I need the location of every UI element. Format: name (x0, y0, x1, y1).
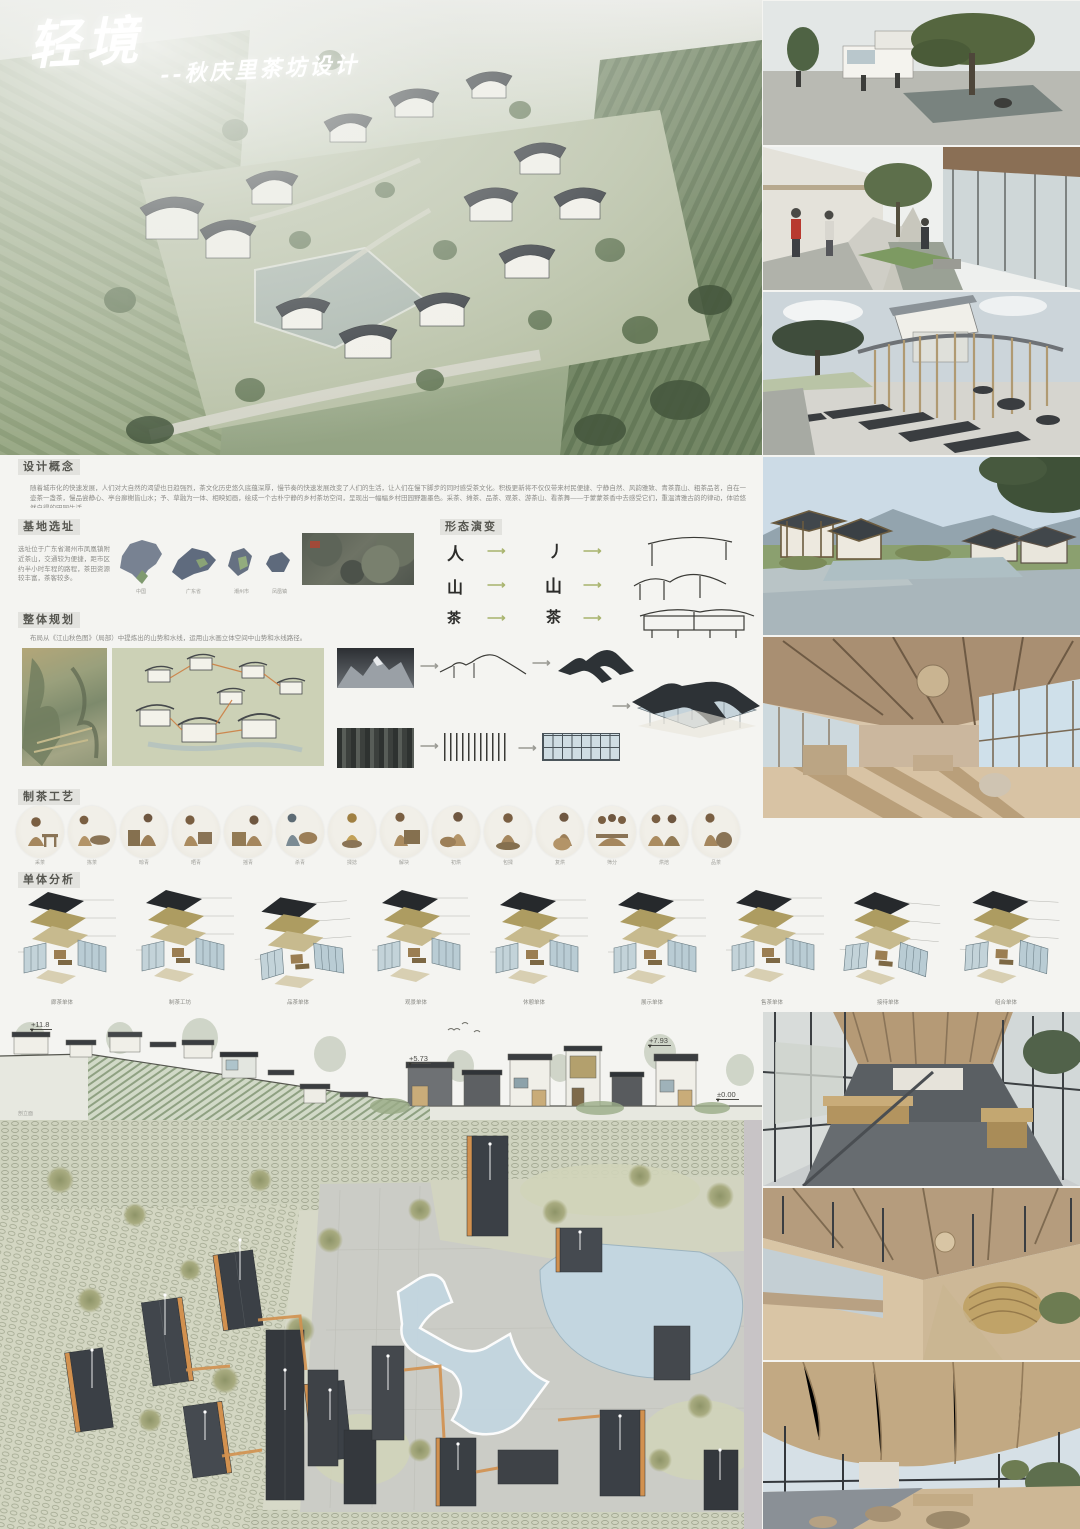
forest-photo (337, 728, 414, 768)
render-interior-veranda-2 (763, 1188, 1080, 1360)
arrow-icon: ⟶ (518, 740, 536, 756)
arrow-icon: ⟶ (612, 698, 630, 714)
roof-form-model (556, 645, 636, 687)
site-marker (310, 541, 320, 548)
section-header-form: 形态演变 (440, 519, 502, 535)
map-caption: 中国 (136, 588, 146, 595)
hero-aerial-render: 轻境 --秋庆里茶坊设计 (0, 0, 762, 455)
form-char-ren-seal: 丿 (548, 538, 564, 562)
process-step-label: 解块 (399, 859, 409, 866)
planning-axon-diagram (112, 648, 324, 766)
render-plaza-tree (763, 1, 1080, 145)
axon-label: 品茶单体 (287, 998, 309, 1006)
arrow-icon: ⟶ (583, 577, 601, 593)
form-roof-sketches (630, 528, 760, 640)
site-plan (0, 1120, 762, 1529)
section-header-unit: 单体分析 (18, 872, 80, 888)
glass-panel-grid (542, 733, 620, 761)
process-step-label: 筛分 (607, 859, 617, 866)
level-marker-11-8: +11.8 (30, 1020, 52, 1030)
arrow-icon: ⟶ (583, 610, 601, 626)
mountain-photo (337, 648, 414, 688)
axon-label: 售茶单体 (761, 998, 783, 1006)
process-step-label: 品茶 (711, 859, 721, 866)
process-step-label: 揉捻 (347, 859, 357, 866)
process-step-label: 晒青 (191, 859, 201, 866)
render-interior-curved-ceiling (763, 1362, 1080, 1529)
process-step-label: 拣茶 (87, 859, 97, 866)
site-location-maps: 中国 广东省 潮州市 凤凰镇 (112, 530, 302, 596)
axon-label: 休憩单体 (523, 998, 545, 1006)
arrow-icon: ⟶ (487, 577, 505, 593)
render-courtyard-screen (763, 292, 1080, 455)
section-header-planning: 整体规划 (18, 612, 80, 628)
section-header-concept: 设计概念 (18, 459, 80, 475)
map-caption: 潮州市 (234, 588, 249, 595)
concept-paragraph: 随着城市化的快速发展，人们对大自然的渴望也日趋强烈，茶文化历史悠久底蕴深厚，慢节… (30, 484, 746, 508)
form-char-cha: 茶 (447, 608, 461, 628)
section-header-site: 基地选址 (18, 519, 80, 535)
presentation-board: 轻境 --秋庆里茶坊设计 (0, 0, 1080, 1529)
axon-label: 接待单体 (877, 998, 899, 1006)
axon-label: 组合单体 (995, 998, 1017, 1006)
level-marker-5-73: +5.73 (408, 1054, 431, 1064)
arrow-icon: ⟶ (420, 658, 438, 674)
exploded-axon-row (10, 888, 1076, 1000)
process-step-label: 采茶 (35, 859, 45, 866)
axon-label: 展示单体 (641, 998, 663, 1006)
section-drawing-label: 剖立面 (18, 1110, 33, 1117)
map-caption: 凤凰镇 (272, 588, 287, 595)
map-town (266, 552, 290, 572)
map-guangdong (172, 548, 216, 580)
axon-label: 观景单体 (405, 998, 427, 1006)
arrow-icon: ⟶ (487, 543, 505, 559)
process-step-label: 烘焙 (659, 859, 669, 866)
building-render-small (630, 680, 762, 740)
reference-painting (22, 648, 107, 766)
process-step-label: 复烘 (555, 859, 565, 866)
tea-process-row: 采茶 拣茶 晾青 晒青 摇青 杀青 揉捻 解块 初烘 包揉 复烘 筛分 烘焙 品… (16, 804, 750, 862)
ridge-sketch (438, 648, 528, 682)
form-char-shan-seal: 山 (545, 572, 562, 597)
arrow-icon: ⟶ (583, 543, 601, 559)
arrow-icon: ⟶ (420, 738, 438, 754)
section-drawing: +11.8 +5.73 +7.93 ±0.00 剖立面 (0, 1014, 762, 1120)
site-paragraph: 选址位于广东省潮州市凤凰镇附近茶山，交通较为便捷，距市区约半小时车程的路程，茶田… (18, 545, 110, 613)
render-interior-dark-floor (763, 1012, 1080, 1186)
arrow-icon: ⟶ (532, 655, 550, 671)
process-step-label: 摇青 (243, 859, 253, 866)
axon-label: 制茶工坊 (169, 998, 191, 1006)
render-walkway (763, 147, 1080, 290)
satellite-image (302, 533, 414, 585)
process-step-label: 杀青 (295, 859, 305, 866)
arrow-icon: ⟶ (487, 610, 505, 626)
process-step-label: 初烘 (451, 859, 461, 866)
map-caption: 广东省 (186, 588, 201, 595)
section-header-process: 制茶工艺 (18, 789, 80, 805)
board-title: 轻境 (27, 15, 146, 73)
process-step-label: 晾青 (139, 859, 149, 866)
render-pond-buildings (763, 457, 1080, 635)
render-interior-veranda-1 (763, 637, 1080, 818)
level-marker-0-00: ±0.00 (716, 1090, 739, 1100)
form-char-cha-seal: 茶 (546, 606, 561, 627)
column-lines-sketch (444, 733, 510, 761)
form-char-ren: 人 (447, 540, 464, 565)
axon-label: 廊茶单体 (51, 998, 73, 1006)
planning-line: 布局从《江山秋色图》（局部）中提炼出的山势和水线，运用山水画立体空间中山势和水线… (30, 634, 550, 644)
level-marker-7-93: +7.93 (648, 1036, 671, 1046)
form-char-shan: 山 (447, 574, 463, 598)
process-step-label: 包揉 (503, 859, 513, 866)
